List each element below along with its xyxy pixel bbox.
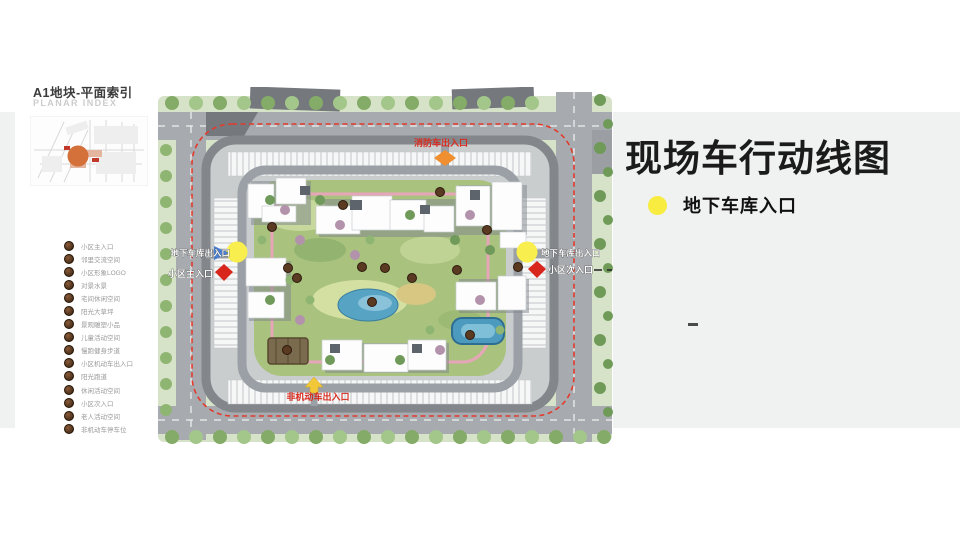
legend-dot-icon: [64, 280, 74, 290]
plan-legend-item: 对景水景: [64, 278, 164, 291]
thumbnail-focus-circle: [68, 146, 89, 167]
main-entrance-label: 小区主入口: [167, 268, 213, 279]
legend-dot-icon: [64, 293, 74, 303]
plan-legend-item: 邻里交流空间: [64, 252, 164, 265]
site-plan-image: A1地块-平面索引 PLANAR INDEX: [15, 78, 612, 446]
site-plan-map: 消防车出入口 地下车库出入口 小区主入口 地下车库出入口 小区次入口 非机动车出…: [158, 87, 613, 446]
garage-entrance-legend: 地下车库入口: [648, 192, 797, 218]
garage-right-label: 地下车库出入口: [541, 248, 601, 258]
slide-title: 现场车行动线图: [625, 128, 945, 182]
plan-legend-item: 景观雕塑小品: [64, 318, 164, 331]
note-dash: [688, 323, 698, 326]
legend-dot-icon: [64, 411, 74, 421]
plan-legend-item: 阳光大草坪: [64, 304, 164, 317]
legend-dot-icon: [64, 345, 74, 355]
plan-legend-item: 小区形象LOGO: [64, 265, 164, 278]
legend-dot-icon: [64, 241, 74, 251]
plan-legend-item: 小区主入口: [64, 239, 164, 252]
legend-dot-icon: [64, 371, 74, 381]
plan-legend-item: 休闲活动空间: [64, 383, 164, 396]
legend-dot-icon: [64, 358, 74, 368]
garage-entrance-label: 地下车库入口: [683, 192, 797, 218]
plan-legend-item: 小区机动车出入口: [64, 357, 164, 370]
legend-dot-icon: [64, 424, 74, 434]
legend-dot-icon: [64, 332, 74, 342]
playground-area: [396, 283, 436, 305]
plan-legend-item: 老人活动空间: [64, 409, 164, 422]
index-map-thumbnail: [30, 116, 148, 186]
plan-legend-list: 小区主入口 邻里交流空间 小区形象LOGO 对景水景 宅间休闲空间 阳光大草坪 …: [64, 239, 164, 435]
garage-entrance-marker-right: [517, 242, 538, 263]
fire-entrance-label: 消防车出入口: [414, 137, 468, 148]
presentation-slide: A1地块-平面索引 PLANAR INDEX: [0, 0, 960, 540]
plan-legend-item: 非机动车停车位: [64, 422, 164, 435]
garage-left-label: 地下车库出入口: [170, 248, 230, 258]
legend-dot-icon: [64, 398, 74, 408]
panel-subtitle: PLANAR INDEX: [33, 98, 117, 108]
legend-dot-icon: [64, 306, 74, 316]
secondary-entrance-label: 小区次入口: [547, 264, 593, 275]
plan-legend-item: 宅间休闲空间: [64, 291, 164, 304]
legend-dot-icon: [64, 385, 74, 395]
plan-legend-item: 小区次入口: [64, 396, 164, 409]
non-motor-entrance-label: 非机动车出入口: [286, 391, 349, 402]
garage-entrance-dot-icon: [648, 196, 667, 215]
legend-dot-icon: [64, 254, 74, 264]
plan-legend-item: 儿童活动空间: [64, 331, 164, 344]
legend-dot-icon: [64, 319, 74, 329]
plan-legend-item: 阳光跑道: [64, 370, 164, 383]
plan-legend-item: 慢跑健身步道: [64, 344, 164, 357]
legend-dot-icon: [64, 267, 74, 277]
